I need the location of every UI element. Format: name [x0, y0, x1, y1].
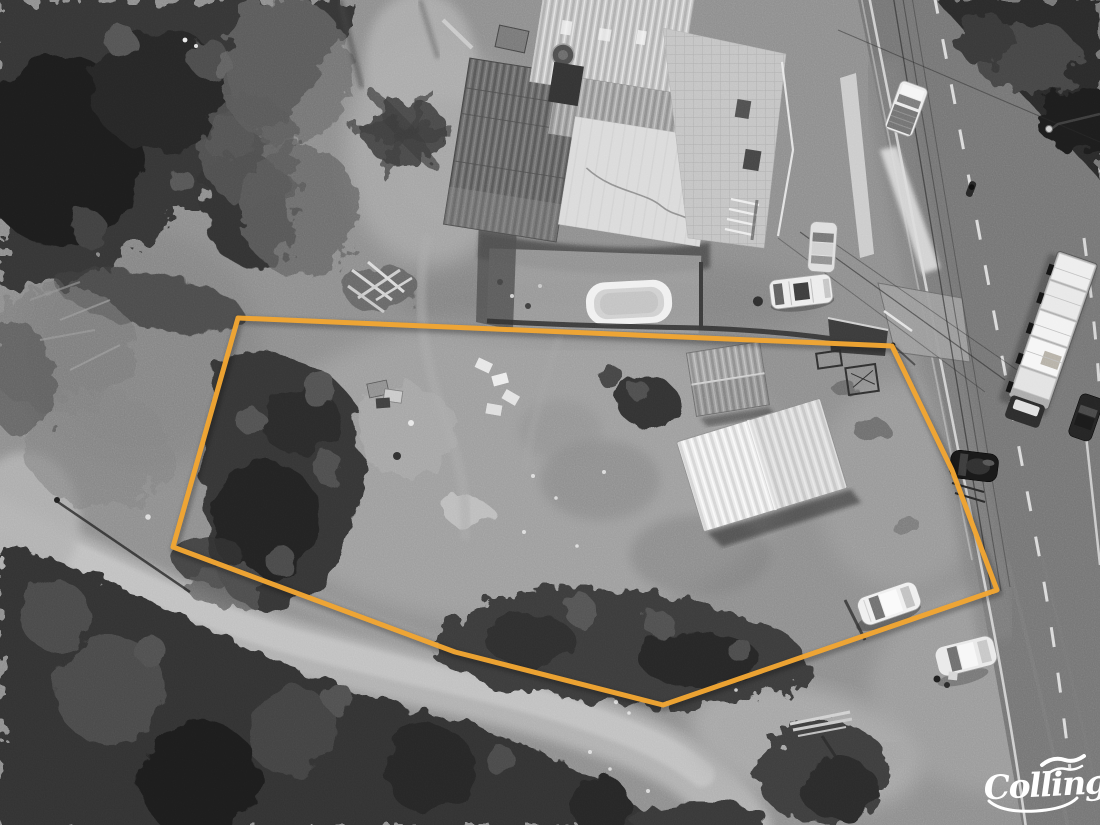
colling-logo-text: Colling [983, 762, 1100, 807]
aerial-property-photo: Colling [0, 0, 1100, 825]
photo-grain [0, 0, 1100, 825]
photo-canvas: Colling [0, 0, 1100, 825]
